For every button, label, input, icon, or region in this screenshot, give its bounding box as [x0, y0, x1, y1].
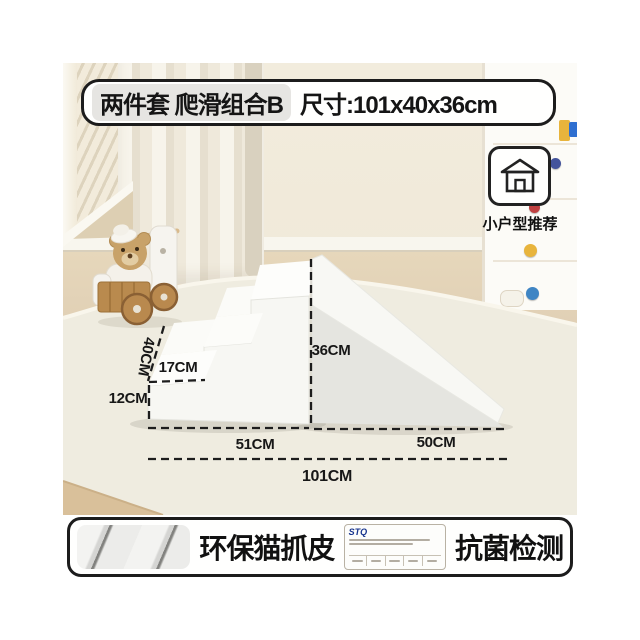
room-photo: 40CM 17CM 12CM 36CM 51CM 50CM 101CM — [63, 63, 577, 515]
scene-graphics — [63, 63, 577, 515]
bear-nose — [128, 254, 133, 259]
house-icon — [500, 157, 540, 195]
wheel-hub — [133, 305, 141, 313]
badge-caption: 小户型推荐 — [478, 213, 562, 234]
title-banner: 两件套 爬滑组合B 尺寸:101x40x36cm — [81, 79, 556, 126]
certificate-text-line — [349, 539, 430, 541]
stair-tread-3 — [251, 260, 318, 300]
dim-label-stairs-length: 51CM — [229, 436, 281, 453]
certificate-brand: STQ — [349, 528, 441, 537]
product-image: 40CM 17CM 12CM 36CM 51CM 50CM 101CM 两件套 … — [0, 0, 640, 640]
size-text: 尺寸:101x40x36cm — [300, 85, 497, 120]
test-label: 抗菌检测 — [455, 527, 563, 567]
bear-eye — [135, 247, 139, 251]
dim-label-slide-length: 50CM — [410, 434, 462, 451]
cart-panel-hole — [160, 248, 166, 254]
small-apartment-badge — [488, 146, 551, 206]
bear-eye — [121, 248, 125, 252]
wheel-hub — [161, 294, 168, 301]
dim-label-step-height: 12CM — [102, 390, 154, 407]
certificate-table — [349, 555, 441, 566]
certificate-thumbnail: STQ — [344, 524, 446, 570]
dim-label-step-depth: 17CM — [152, 359, 204, 376]
set-name-chip: 两件套 爬滑组合B — [92, 84, 291, 121]
certificate-text-line — [349, 543, 413, 545]
material-label: 环保猫抓皮 — [199, 527, 334, 567]
dim-label-slide-height: 36CM — [305, 342, 357, 359]
dim-label-total-length: 101CM — [297, 468, 357, 486]
material-swatch — [77, 525, 190, 569]
feature-banner: 环保猫抓皮 STQ 抗菌检测 — [67, 517, 573, 577]
